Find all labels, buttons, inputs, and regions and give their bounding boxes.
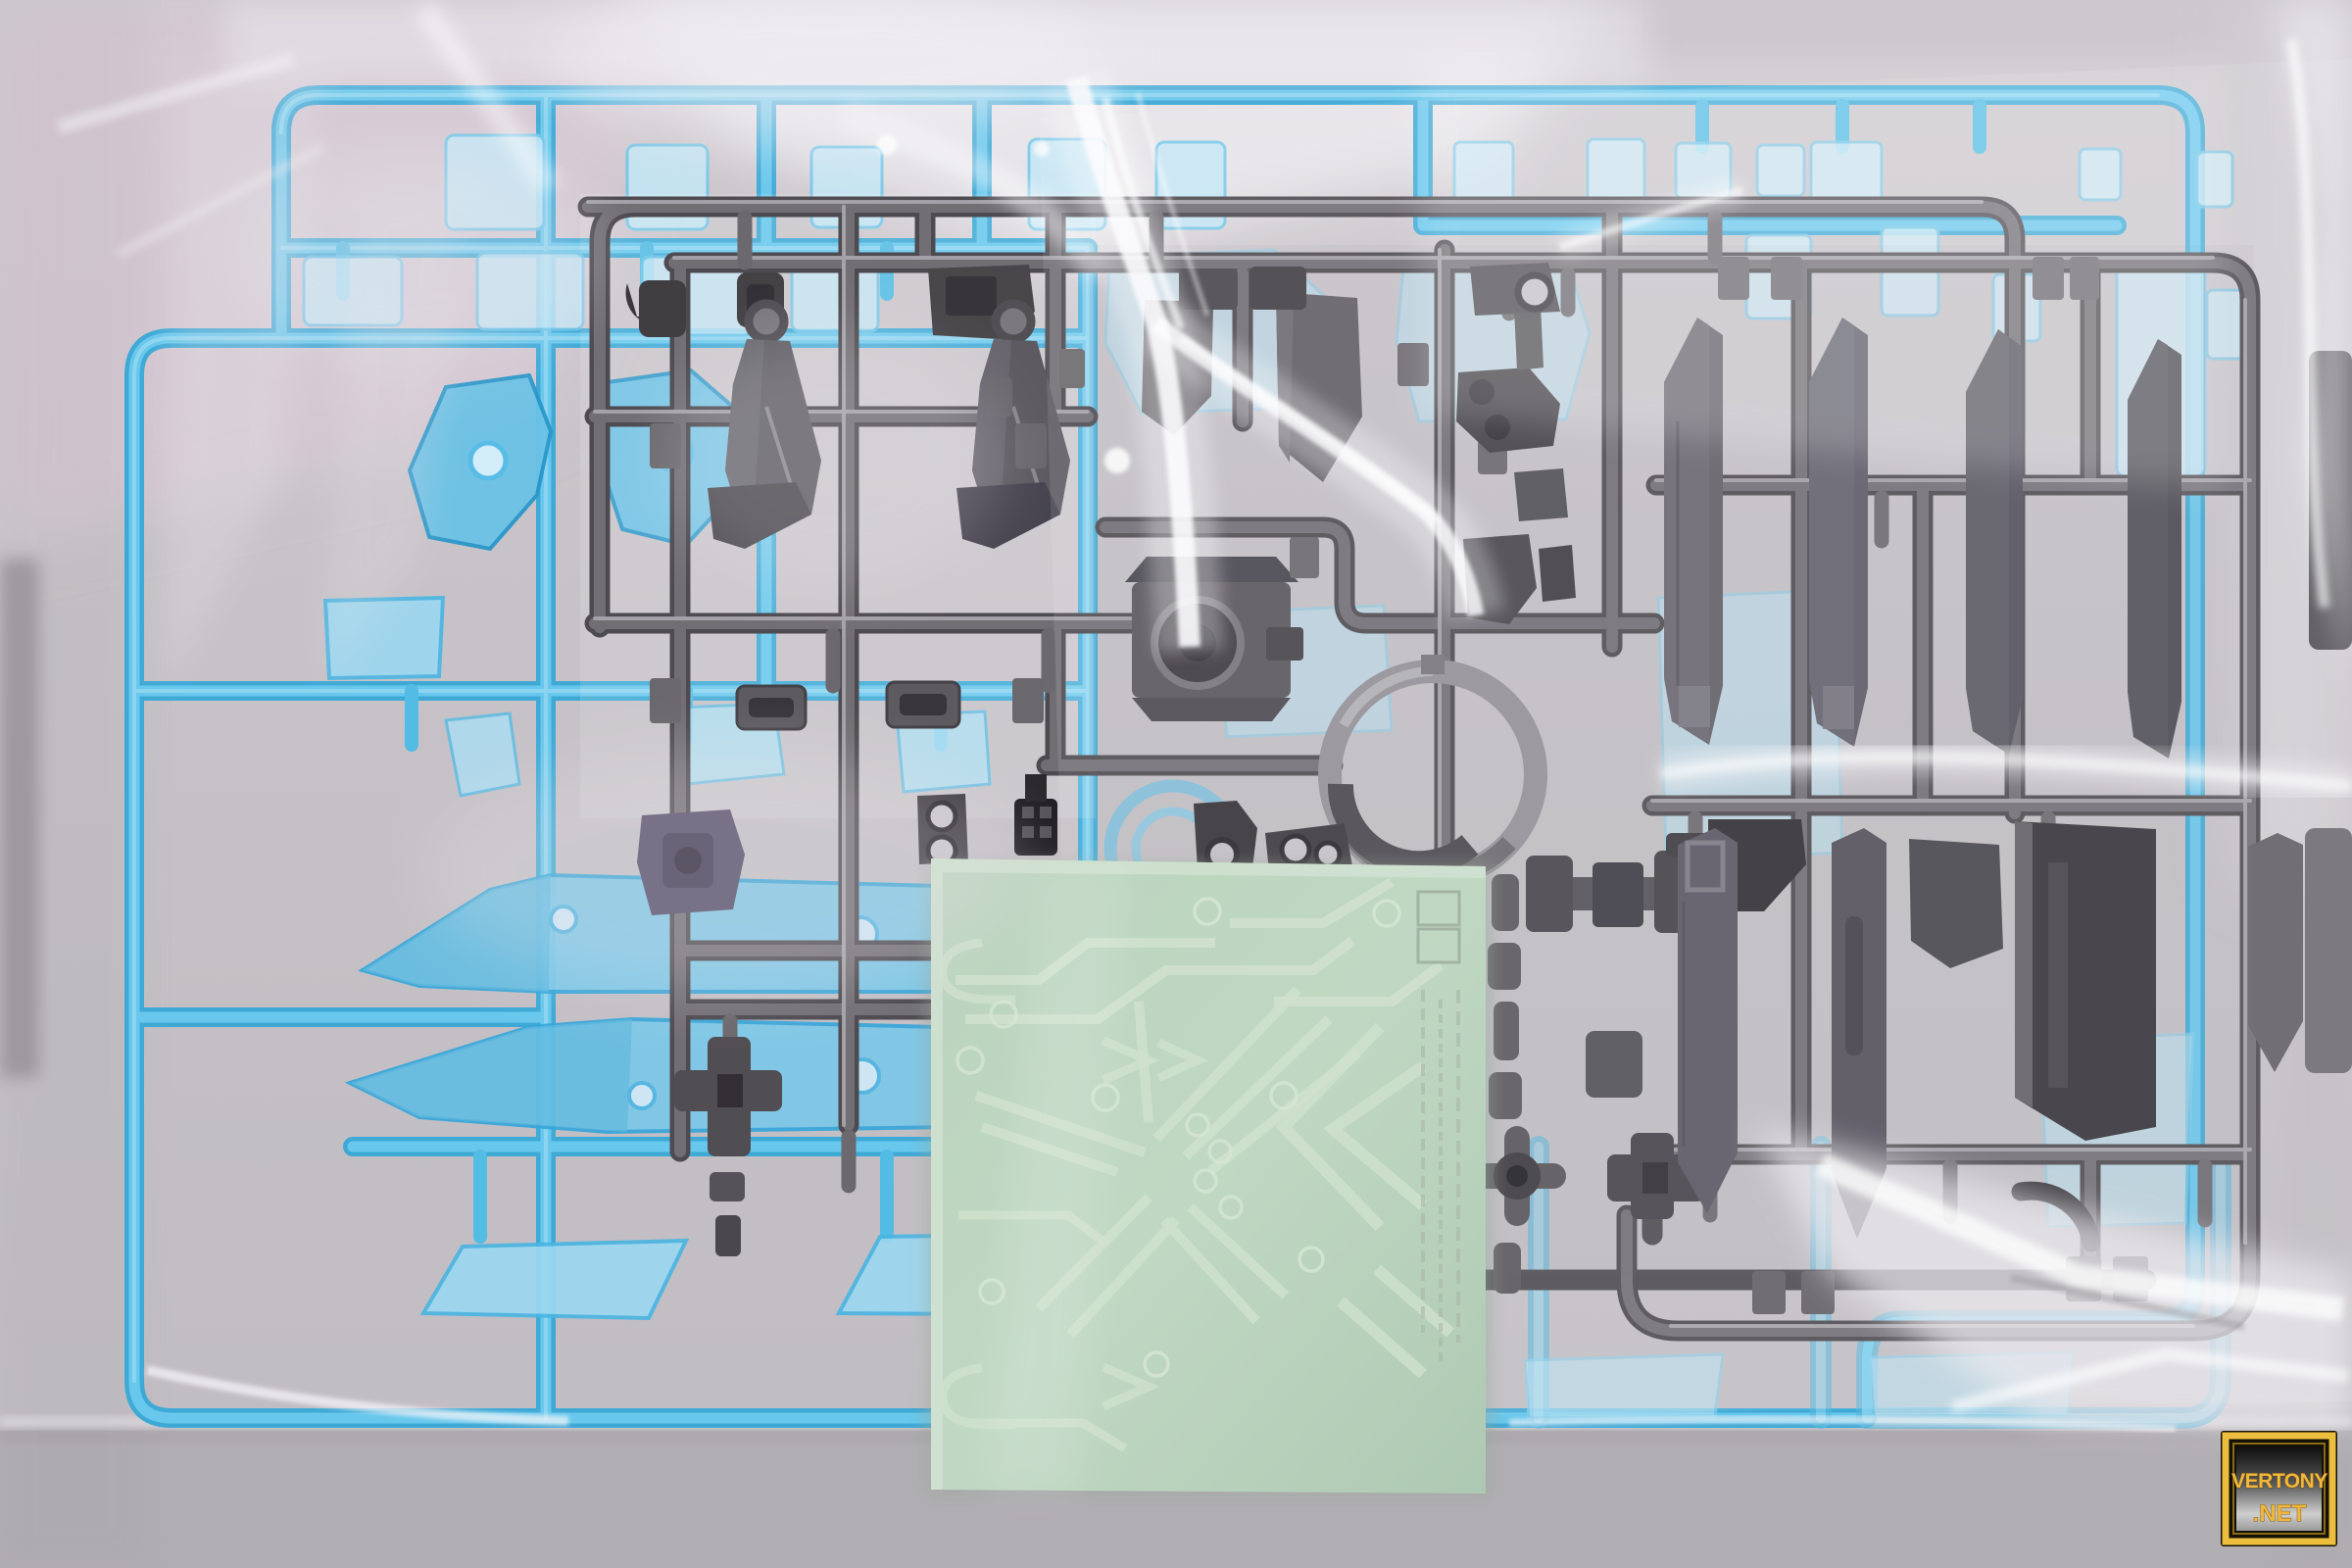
svg-text:.NET: .NET [2253, 1500, 2307, 1527]
svg-text:VERTONY: VERTONY [2231, 1470, 2327, 1493]
